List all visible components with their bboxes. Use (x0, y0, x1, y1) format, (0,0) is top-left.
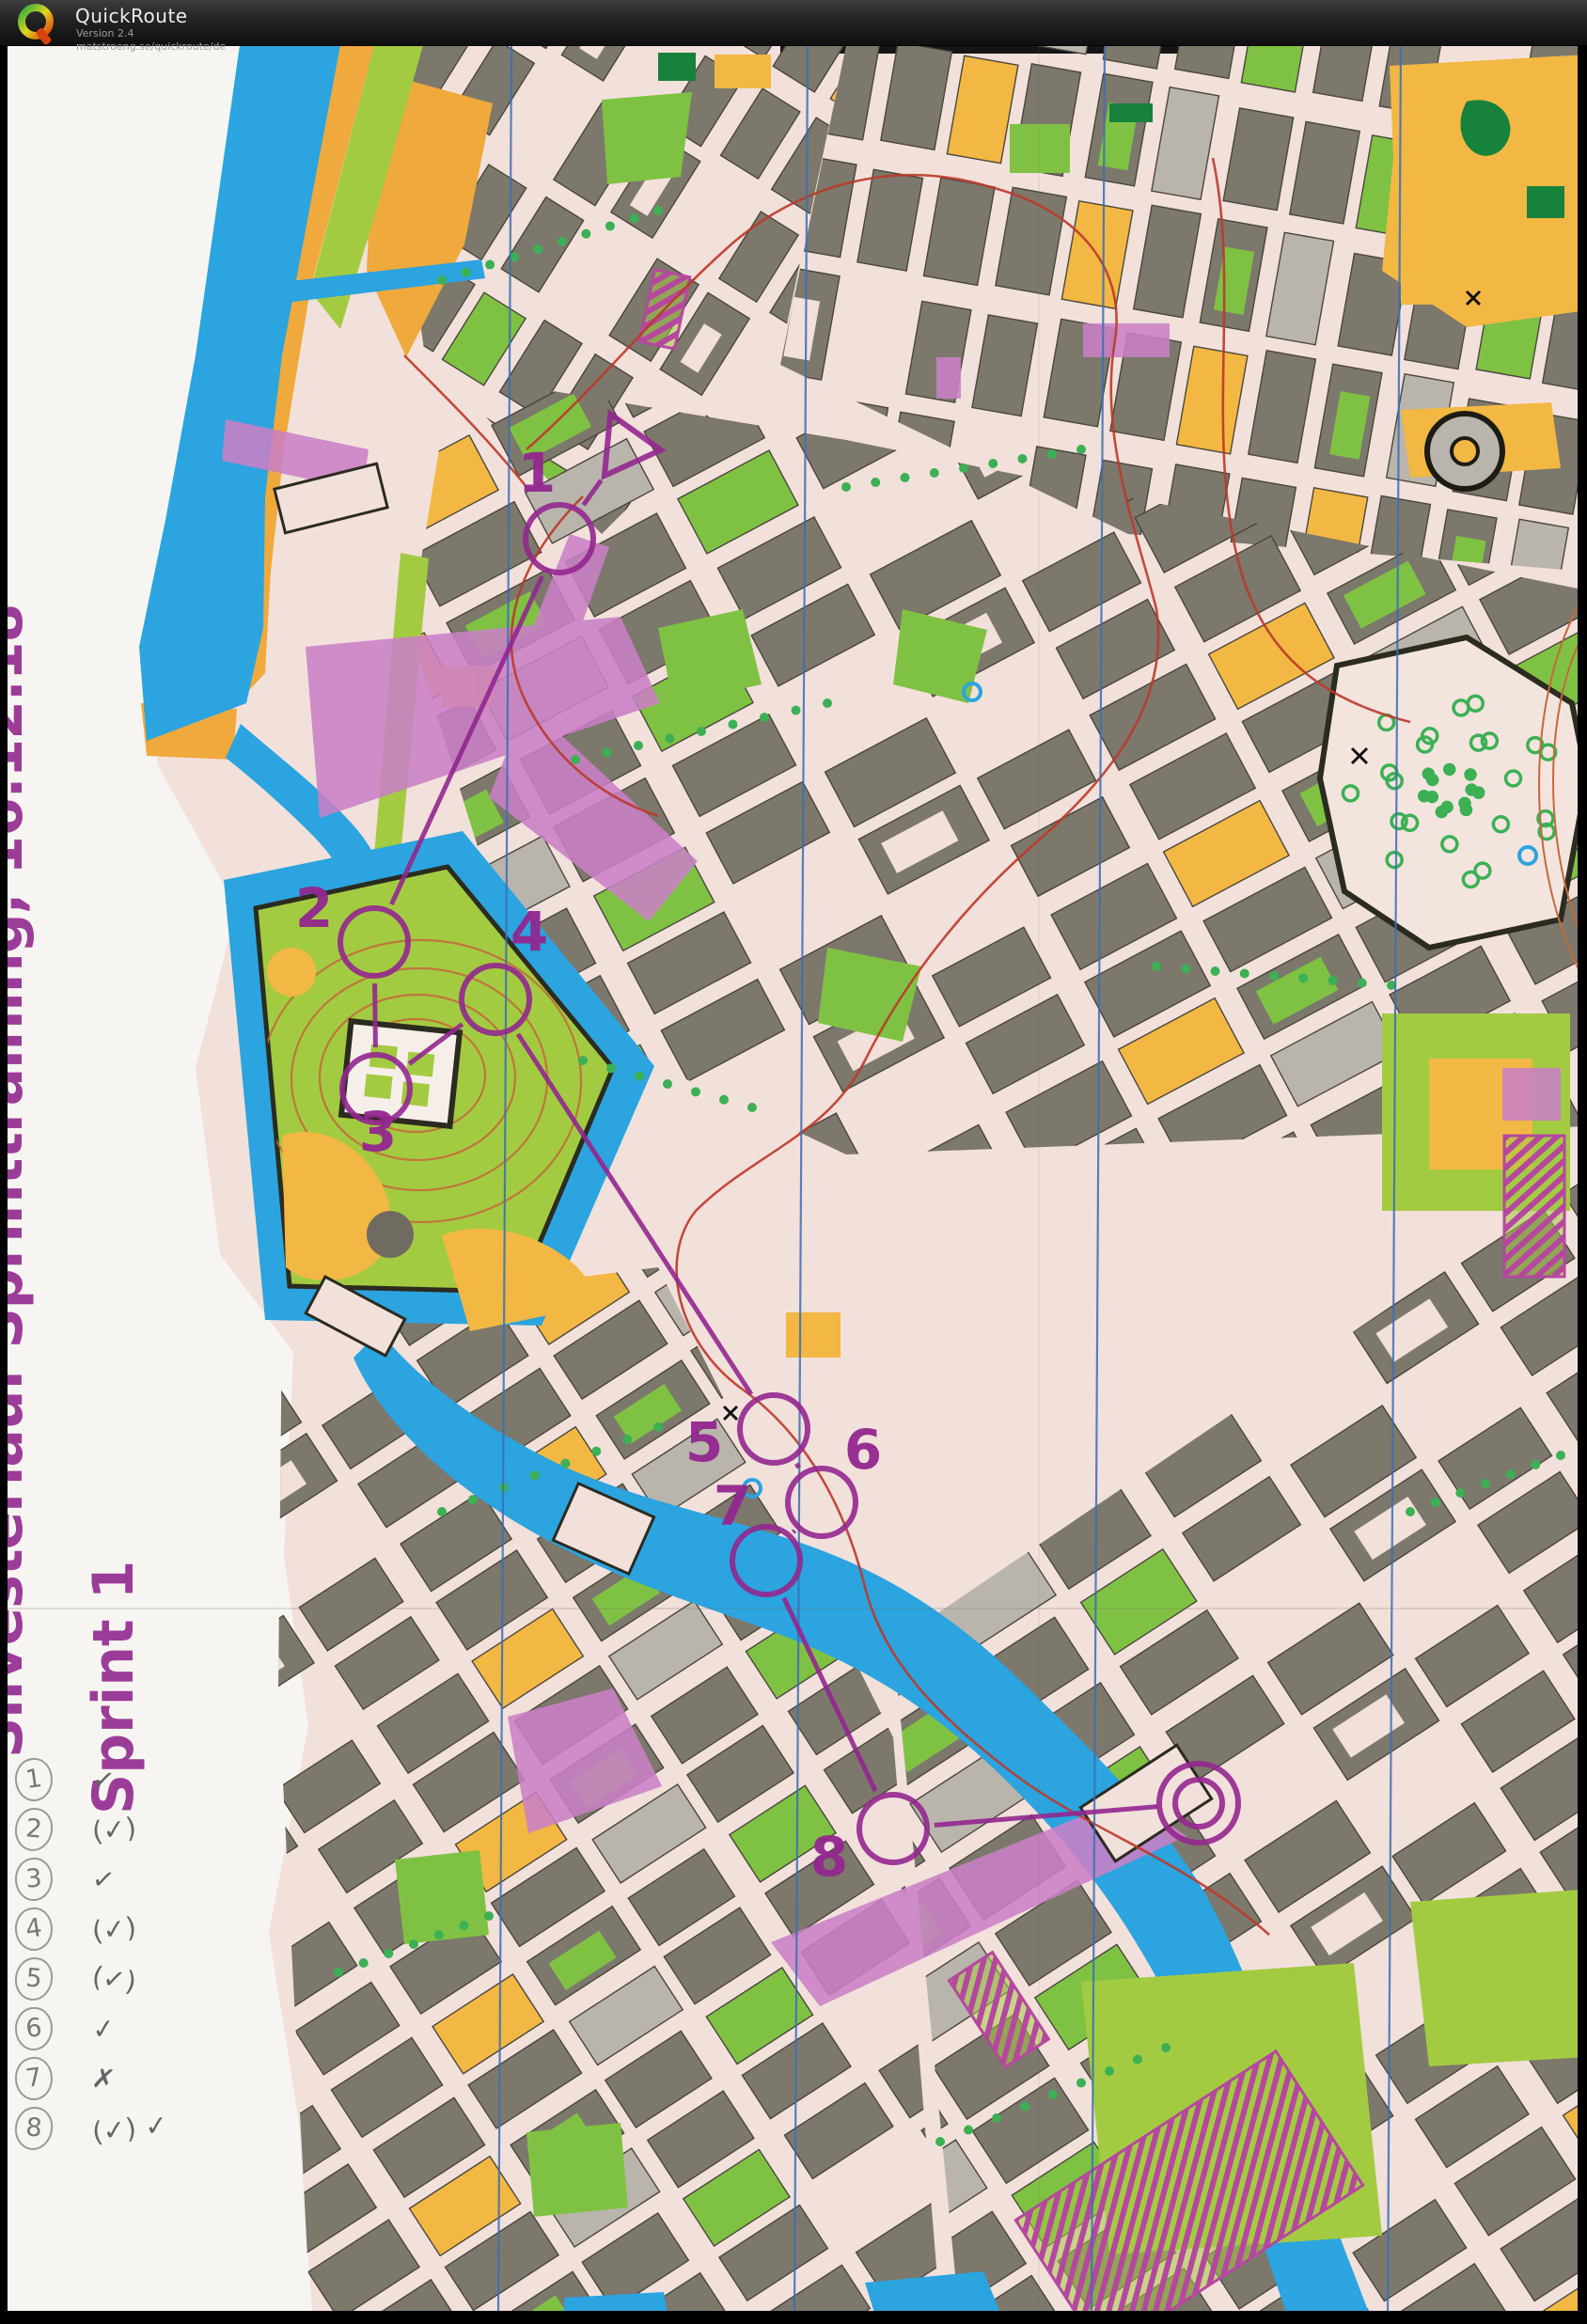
control-list-number: 7 (12, 2054, 55, 2102)
quickroute-logo-icon (11, 2, 64, 45)
control-list-number: 6 (13, 2005, 54, 2051)
control-number: 5 (685, 1410, 723, 1474)
control-list-number: 1 (12, 1755, 55, 1803)
control-list-row: 7✗ (15, 2053, 167, 2103)
event-title: Silvesterlauf Sprinttraining, 16.12.18 (8, 605, 36, 1758)
control-list-mark: (✓) (90, 1910, 137, 1947)
control-number: 3 (359, 1100, 397, 1164)
control-number: 4 (511, 900, 548, 964)
control-list-mark: ✓ (90, 1762, 118, 1797)
control-list-number: 5 (13, 1955, 55, 2002)
app-version: Version 2.4 (76, 27, 134, 39)
control-list-number: 4 (12, 1905, 55, 1953)
control-list-row: 5(✓) (15, 1954, 167, 2003)
control-list-row: 2(✓) (15, 1804, 167, 1854)
spiral-ramp (1427, 414, 1502, 489)
control-number: 1 (518, 441, 556, 505)
app-title: QuickRoute (75, 5, 188, 27)
app-website: matstroeng.se/quickroute/de (76, 40, 226, 53)
control-list-row: 1✓ (15, 1754, 167, 1804)
control-list-mark: ✓ (90, 1861, 118, 1896)
control-number: 8 (810, 1825, 848, 1889)
control-number: 2 (295, 876, 333, 940)
control-list-mark: (✓) ✓ (90, 2108, 169, 2147)
control-list-mark: ✓ (90, 2011, 117, 2045)
orienteering-map-canvas[interactable]: 12345678 (8, 45, 1578, 2311)
control-number: 6 (844, 1418, 882, 1482)
control-list-number: 2 (13, 1806, 55, 1852)
control-list-row: 6✓ (15, 2003, 167, 2053)
handwritten-control-list: 1✓2(✓)3✓4(✓)5(✓)6✓7✗8(✓) ✓ (15, 1754, 167, 2153)
control-list-row: 8(✓) ✓ (15, 2103, 167, 2153)
control-list-mark: (✓) (90, 1959, 138, 1997)
titlebar: QuickRoute Version 2.4 matstroeng.se/qui… (0, 0, 1587, 46)
control-list-row: 4(✓) (15, 1904, 167, 1954)
scanned-map-page: 12345678 Silvesterlauf Sprinttraining, 1… (8, 45, 1578, 2311)
control-list-number: 8 (13, 2105, 55, 2151)
control-list-number: 3 (13, 1856, 54, 1902)
control-list-mark: ✗ (90, 2061, 118, 2096)
control-number: 7 (714, 1474, 751, 1538)
control-list-row: 3✓ (15, 1854, 167, 1904)
control-list-mark: (✓) (90, 1811, 137, 1847)
